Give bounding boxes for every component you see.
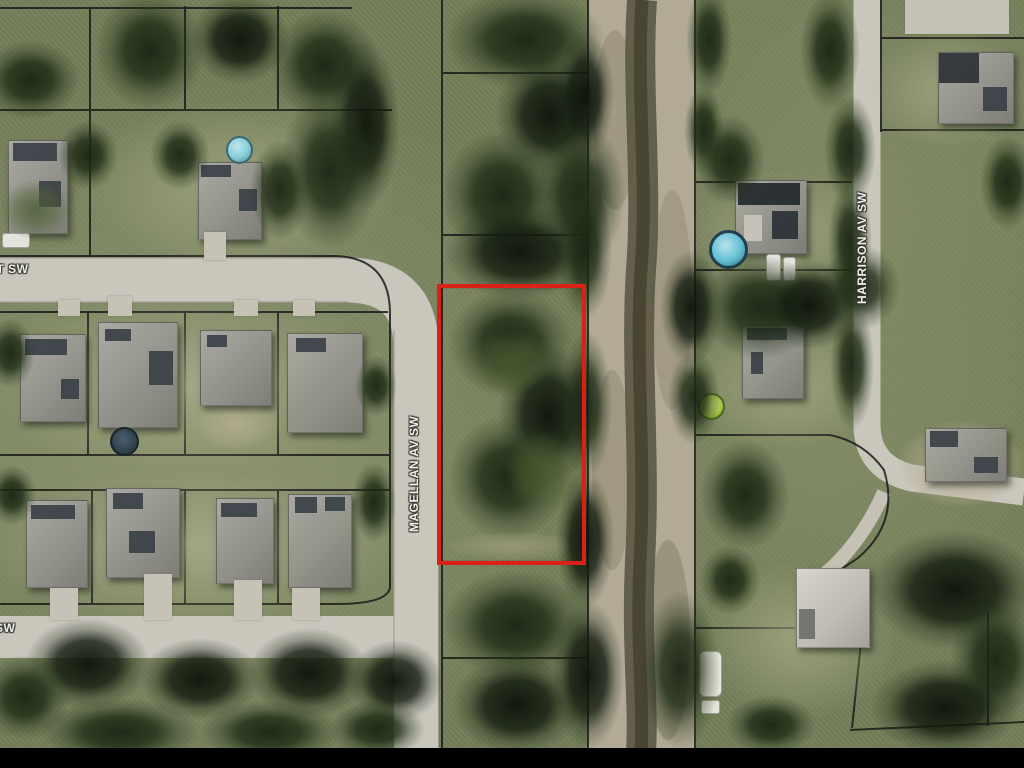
aerial-map-canvas[interactable]: MAGELLAN AV SW HARRISON AV SW ST SW SW [0, 0, 1024, 768]
house [106, 488, 180, 578]
tree-canopy [0, 180, 70, 240]
tree-canopy [556, 30, 614, 160]
water-tank-dome [226, 136, 253, 164]
driveway [204, 232, 226, 260]
tree-canopy [640, 590, 720, 750]
tree-canopy [352, 462, 396, 542]
house [216, 498, 274, 584]
driveway [234, 300, 258, 316]
tree-canopy [58, 120, 118, 190]
tree-canopy [668, 350, 720, 445]
backyard-pool [110, 427, 139, 456]
driveway [293, 300, 315, 316]
house [26, 500, 88, 588]
house [288, 494, 352, 588]
tree-canopy [552, 600, 624, 750]
house [925, 428, 1007, 482]
driveway [292, 588, 320, 620]
tree-canopy [250, 140, 310, 240]
driveway [108, 296, 132, 316]
driveway [58, 300, 80, 316]
tree-canopy [700, 440, 790, 550]
tree-canopy [830, 300, 874, 430]
house [796, 568, 870, 648]
house [98, 322, 178, 428]
tree-canopy [150, 120, 210, 190]
tree-canopy [870, 660, 1020, 755]
subject-parcel-outline[interactable] [437, 284, 586, 565]
concrete-pad [905, 0, 1009, 34]
tree-canopy [700, 545, 760, 615]
street-label-top-left-partial: ST SW [0, 262, 29, 276]
house [200, 330, 272, 406]
letterbox-bottom [0, 748, 1024, 768]
house [287, 333, 363, 433]
driveway [50, 588, 78, 620]
street-label-harrison-av-sw: HARRISON AV SW [855, 152, 869, 304]
tree-canopy [355, 355, 397, 417]
house [938, 52, 1014, 124]
street-label-bottom-left-partial: SW [0, 621, 15, 635]
tree-canopy [695, 115, 765, 205]
tree-canopy [726, 695, 816, 755]
driveway [234, 580, 262, 620]
driveway [144, 574, 172, 620]
street-label-magellan-av-sw: MAGELLAN AV SW [407, 372, 421, 532]
